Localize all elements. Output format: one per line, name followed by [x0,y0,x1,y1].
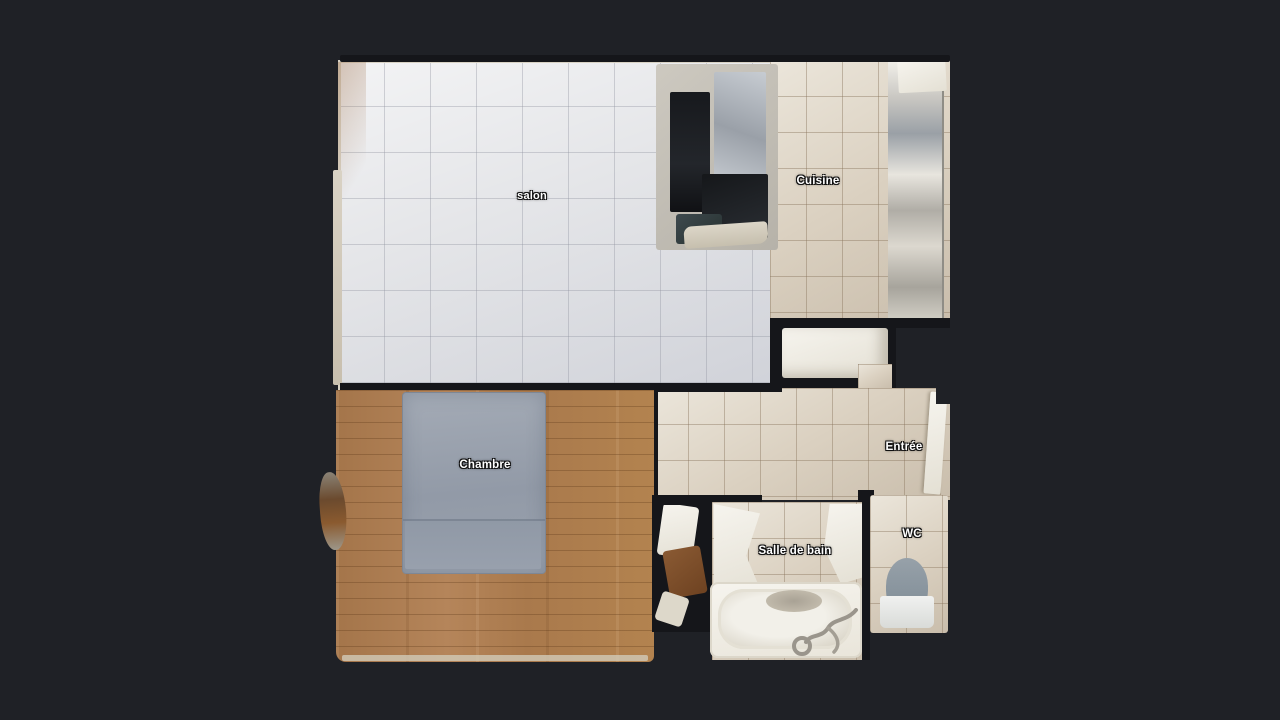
room-label-cuisine: Cuisine [797,175,840,187]
room-label-wc: WC [902,528,922,540]
salon-corner-shading [338,62,366,202]
room-label-salle-de-bain: Salle de bain [759,545,832,557]
room-label-salon: salon [517,190,547,202]
shower-hose-icon [776,608,860,656]
hall-lower-furniture-brown [662,545,708,599]
bed [402,392,546,574]
floorplan-viewer[interactable]: salon Cuisine Chambre Entrée Salle de ba… [0,0,1280,720]
wall-bain-wc-lower [862,548,870,660]
appliance-metal-panel [714,72,766,180]
counter-cream-edge [683,221,768,249]
room-label-chambre: Chambre [459,459,510,471]
bed-foot-section [405,521,541,569]
balcony-door-top-right [897,59,947,93]
wall-top [340,55,950,62]
salon-left-baseboard [333,170,342,385]
bathtub [710,582,862,658]
kitchen-counter-right [888,62,944,318]
chambre-bottom-baseboard [342,655,648,661]
entree-top-right-notch [936,388,950,404]
toilet-base [880,596,934,628]
hall-tile-fragment [858,364,892,388]
room-label-entree: Entrée [886,441,923,453]
kitchen-appliance-block [656,64,778,250]
